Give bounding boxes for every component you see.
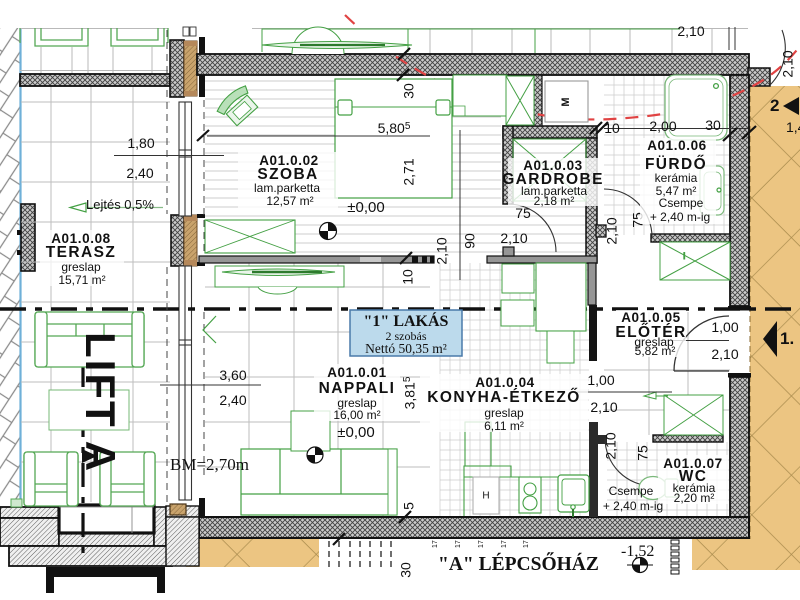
svg-text:2: 2	[770, 96, 779, 115]
svg-text:15,71 m²: 15,71 m²	[58, 273, 105, 287]
svg-text:+ 2,40 m-ig: + 2,40 m-ig	[603, 499, 663, 513]
svg-text:1,80: 1,80	[127, 135, 154, 151]
svg-text:"1" LAKÁS: "1" LAKÁS	[364, 311, 449, 330]
svg-text:+ 2,40 m-ig: + 2,40 m-ig	[650, 210, 710, 224]
svg-text:±0,00: ±0,00	[337, 424, 374, 441]
svg-text:H: H	[482, 491, 489, 502]
svg-text:KONYHA-ÉTKEZŐ: KONYHA-ÉTKEZŐ	[427, 388, 580, 406]
svg-text:2,10: 2,10	[711, 346, 738, 362]
svg-text:Csempe: Csempe	[609, 484, 654, 498]
svg-text:6,11 m²: 6,11 m²	[484, 419, 524, 433]
svg-text:75: 75	[515, 205, 531, 221]
svg-text:BM=2,70m: BM=2,70m	[170, 455, 249, 474]
svg-text:75: 75	[635, 445, 651, 461]
svg-text:Csempe: Csempe	[659, 196, 704, 210]
svg-text:1,00: 1,00	[587, 372, 614, 388]
svg-text:A01.0.04: A01.0.04	[475, 375, 535, 390]
svg-text:M: M	[560, 97, 572, 106]
svg-text:"A" LÉPCSŐHÁZ: "A" LÉPCSŐHÁZ	[438, 553, 599, 575]
svg-text:1.: 1.	[780, 329, 794, 348]
svg-text:17: 17	[455, 540, 462, 548]
svg-text:12,57 m²: 12,57 m²	[266, 194, 313, 208]
svg-text:2,40: 2,40	[219, 392, 246, 408]
svg-text:2,10: 2,10	[604, 217, 620, 244]
svg-text:2,10: 2,10	[500, 230, 527, 246]
svg-text:LIFT A: LIFT A	[77, 332, 124, 473]
svg-text:30: 30	[398, 562, 414, 578]
svg-text:1,4: 1,4	[786, 119, 800, 135]
svg-text:2,20 m²: 2,20 m²	[674, 491, 715, 505]
svg-text:2,10: 2,10	[434, 237, 450, 264]
svg-text:Nettó 50,35 m²: Nettó 50,35 m²	[365, 341, 447, 356]
svg-text:lam.parketta: lam.parketta	[254, 181, 320, 195]
svg-text:10: 10	[604, 120, 620, 136]
svg-text:3,60: 3,60	[219, 367, 246, 383]
svg-text:A01.0.01: A01.0.01	[327, 365, 387, 380]
svg-text:Lejtés 0,5%: Lejtés 0,5%	[86, 197, 154, 212]
svg-text:17: 17	[478, 540, 485, 548]
svg-text:NAPPALI: NAPPALI	[319, 380, 396, 397]
svg-text:2,18 m²: 2,18 m²	[534, 194, 575, 208]
svg-text:2,10: 2,10	[677, 23, 704, 39]
svg-text:A01.0.06: A01.0.06	[647, 138, 707, 153]
svg-text:30: 30	[401, 83, 417, 99]
svg-text:5,82 m²: 5,82 m²	[635, 344, 676, 358]
svg-text:greslap: greslap	[61, 260, 101, 274]
svg-text:2,10: 2,10	[780, 50, 796, 77]
svg-text:5: 5	[401, 502, 417, 510]
svg-text:2,10: 2,10	[590, 399, 617, 415]
svg-text:greslap: greslap	[484, 406, 524, 420]
svg-text:2,71: 2,71	[401, 158, 417, 185]
svg-text:TERASZ: TERASZ	[46, 244, 116, 261]
svg-text:kerámia: kerámia	[655, 171, 698, 185]
svg-text:16,00 m²: 16,00 m²	[333, 408, 380, 422]
svg-text:±0,00: ±0,00	[347, 199, 384, 216]
svg-text:17: 17	[432, 540, 439, 548]
svg-text:90: 90	[462, 233, 478, 249]
svg-text:2,00: 2,00	[649, 118, 676, 134]
svg-text:1,00: 1,00	[711, 319, 738, 335]
svg-text:I: I	[683, 251, 686, 261]
svg-text:17: 17	[501, 540, 508, 548]
svg-text:2,10: 2,10	[603, 432, 619, 459]
svg-text:10: 10	[400, 269, 416, 285]
svg-text:17: 17	[523, 540, 530, 548]
svg-text:A01.0.05: A01.0.05	[621, 310, 681, 325]
svg-text:2,40: 2,40	[126, 165, 153, 181]
svg-text:30: 30	[705, 117, 721, 133]
